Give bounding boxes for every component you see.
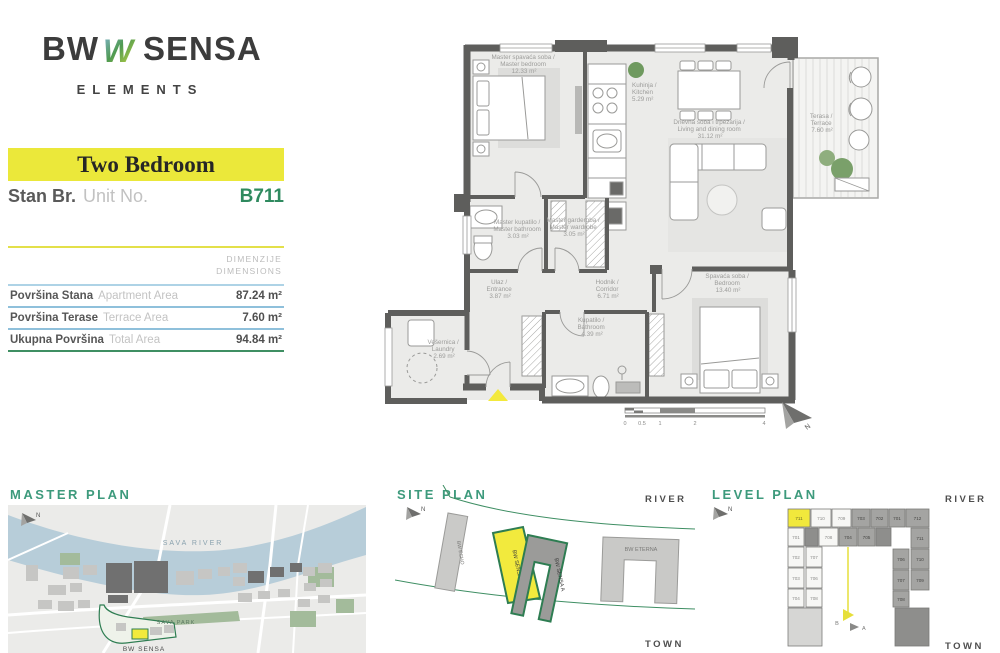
kitchen-counter <box>588 64 626 198</box>
dim-header-sr: DIMENZIJE <box>10 253 282 265</box>
coffee-table <box>707 185 737 215</box>
terrace-deck <box>793 58 878 198</box>
plant-icon <box>628 62 644 78</box>
svg-text:N: N <box>728 507 732 513</box>
row-label-en: Total Area <box>109 334 160 346</box>
room-label-terrace: Terasa / Terrace 7.60 m² <box>810 113 834 134</box>
level-plan-unit-label: 704 <box>844 535 852 540</box>
level-plan-unit-label: 709 <box>838 516 846 521</box>
level-plan-unit-label: 702 <box>876 516 884 521</box>
level-plan-unit <box>876 528 891 546</box>
column <box>555 40 607 52</box>
svg-text:4: 4 <box>762 421 765 427</box>
row-value: 7.60 m² <box>242 312 282 324</box>
level-plan-unit-label: 710 <box>916 557 924 562</box>
stan-br-label: Stan Br. <box>8 186 76 207</box>
bedroom-closet <box>649 314 664 376</box>
logo-sensa-text: SENSA <box>143 30 262 68</box>
room-label-corridor: Hodnik / Corridor 6.71 m² <box>596 279 621 300</box>
level-plan-unit-label: 708 <box>810 596 818 601</box>
row-value: 94.84 m² <box>236 334 282 346</box>
svg-text:0.5: 0.5 <box>638 421 646 427</box>
level-plan-unit-label: 704 <box>792 596 800 601</box>
level-plan-unit <box>895 608 929 646</box>
pouf <box>762 208 786 230</box>
svg-text:N: N <box>421 507 425 513</box>
level-plan-unit-label: 711 <box>916 536 924 541</box>
level-plan-map: RIVER TOWN 71171070970370270171270170870… <box>700 485 1000 653</box>
bw-sensa-building <box>132 629 148 639</box>
north-arrow-icon: N <box>713 507 732 520</box>
logo-subtitle: ELEMENTS <box>40 82 240 97</box>
svg-text:A: A <box>862 626 866 632</box>
row-label-en: Terrace Area <box>103 312 168 324</box>
level-plan-unit <box>788 608 822 646</box>
dimensions-table: DIMENZIJE DIMENSIONS Površina Stana Apar… <box>8 246 284 352</box>
level-plan-unit-label: 707 <box>897 578 905 583</box>
svg-text:0: 0 <box>623 421 626 427</box>
level-plan-unit <box>805 528 818 546</box>
level-plan-unit-label: 701 <box>792 535 800 540</box>
svg-text:N: N <box>36 513 40 519</box>
svg-text:B: B <box>835 621 839 627</box>
table-row: Površina Terase Terrace Area 7.60 m² <box>8 306 284 328</box>
level-plan-units: 7117107097037027017127017087047057117027… <box>788 509 929 646</box>
level-plan-unit-label: 701 <box>893 516 901 521</box>
river-label: RIVER <box>945 494 987 505</box>
dining-set <box>678 61 740 120</box>
north-arrow-icon: N <box>406 507 425 520</box>
bw-sensa-label: BW SENSA <box>123 646 165 653</box>
column <box>650 265 662 274</box>
unit-type-title: Two Bedroom <box>8 148 284 181</box>
table-row: Površina Stana Apartment Area 87.24 m² <box>8 284 284 306</box>
column <box>772 37 798 58</box>
row-label-sr: Površina Terase <box>10 312 98 324</box>
level-plan-unit-label: 707 <box>810 555 818 560</box>
floor-plan: Master spavaća soba / Master bedroom 12.… <box>370 30 890 460</box>
room-label-bathroom: Kupatilo / Bathroom 4.39 m² <box>577 317 606 338</box>
entrance-closet <box>522 316 542 376</box>
brand-logo: BW W SENSA <box>42 30 272 68</box>
level-plan-unit-label: 708 <box>825 535 833 540</box>
plant-icon <box>831 158 853 180</box>
town-label: TOWN <box>945 641 984 652</box>
scale-bar: 0 0.5 1 2 4 <box>623 408 765 427</box>
level-plan-unit-label: 702 <box>792 555 800 560</box>
logo-w-mark-icon: W <box>103 34 139 68</box>
dimensions-table-header: DIMENZIJE DIMENSIONS <box>8 248 284 284</box>
level-plan-unit-label: 710 <box>817 516 825 521</box>
unit-number-row: Stan Br. Unit No. B711 <box>8 186 284 208</box>
level-plan-unit-label: 711 <box>795 516 803 521</box>
svg-text:2: 2 <box>693 421 696 427</box>
level-plan-unit-label: 709 <box>916 578 924 583</box>
level-plan-unit-label: 705 <box>863 535 871 540</box>
bw-eterna-label: BW ETERNA <box>625 547 658 553</box>
logo-bw-text: BW <box>42 30 99 68</box>
master-plan-title: MASTER PLAN <box>10 487 131 502</box>
row-label-sr: Površina Stana <box>10 290 93 302</box>
town-label: TOWN <box>645 639 684 650</box>
master-plan-map: SAVA RIVER SAVA PARK BW SENSA N <box>8 505 366 653</box>
row-value: 87.24 m² <box>236 290 282 302</box>
dim-header-en: DIMENSIONS <box>10 265 282 277</box>
sava-park-label: SAVA PARK <box>157 620 196 626</box>
tv-panel <box>575 86 582 134</box>
level-plan-unit-label: 703 <box>857 516 865 521</box>
site-plan-map: RIVER TOWN BW ECHO BW SENSA B BW SENSA A… <box>395 485 695 653</box>
row-label-en: Apartment Area <box>98 290 178 302</box>
svg-text:1: 1 <box>658 421 661 427</box>
section-marker: B A <box>835 547 866 632</box>
level-plan-unit-label: 706 <box>897 557 905 562</box>
level-plan-unit-label: 706 <box>810 576 818 581</box>
level-plan-unit-label: 708 <box>897 597 905 602</box>
unit-number: B711 <box>240 186 284 208</box>
level-plan-unit-label: 712 <box>914 516 922 521</box>
sava-river-label: SAVA RIVER <box>163 540 224 547</box>
svg-text:N: N <box>804 423 812 432</box>
svg-text:W: W <box>103 34 136 68</box>
unit-no-label: Unit No. <box>83 186 148 207</box>
row-label-sr: Ukupna Površina <box>10 334 104 346</box>
table-row: Ukupna Površina Total Area 94.84 m² <box>8 328 284 352</box>
north-arrow-icon: N <box>782 402 812 432</box>
level-plan-unit-label: 703 <box>792 576 800 581</box>
river-label: RIVER <box>645 494 687 505</box>
column <box>454 194 470 212</box>
